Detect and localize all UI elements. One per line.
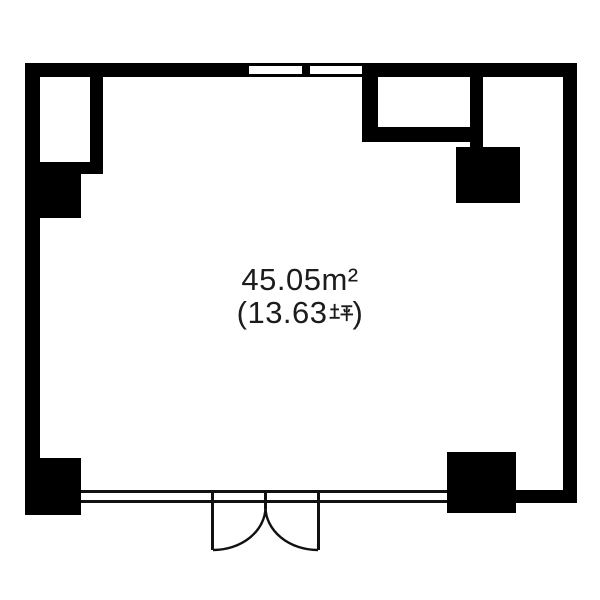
double-door-swing-icon (180, 478, 380, 570)
window-top-2 (310, 66, 362, 74)
area-tsubo-prefix: (13.63 (237, 295, 328, 330)
area-tsubo-label: (13.63 ) (0, 296, 600, 329)
area-label: 45.05m² (13.63 ) (0, 263, 600, 329)
alcove-right-bottom-band (362, 127, 483, 142)
pillar-bottom-left (25, 458, 81, 515)
alcove-left-vertical-band (90, 70, 103, 174)
area-tsubo-suffix: ) (353, 295, 364, 330)
pillar-bottom-right (447, 452, 516, 513)
floor-plan: 45.05m² (13.63 ) (0, 0, 600, 600)
alcove-right-right-band (470, 70, 483, 150)
door-swing-arc-right (266, 507, 319, 550)
window-top-1 (249, 66, 302, 74)
tsubo-character-glyph (328, 299, 353, 326)
pillar-top-right (456, 147, 520, 203)
wall-bottom-right-segment (516, 490, 577, 503)
pillar-top-left (25, 162, 81, 218)
area-m2-label: 45.05m² (0, 263, 600, 296)
door-swing-arc-left (213, 507, 266, 550)
